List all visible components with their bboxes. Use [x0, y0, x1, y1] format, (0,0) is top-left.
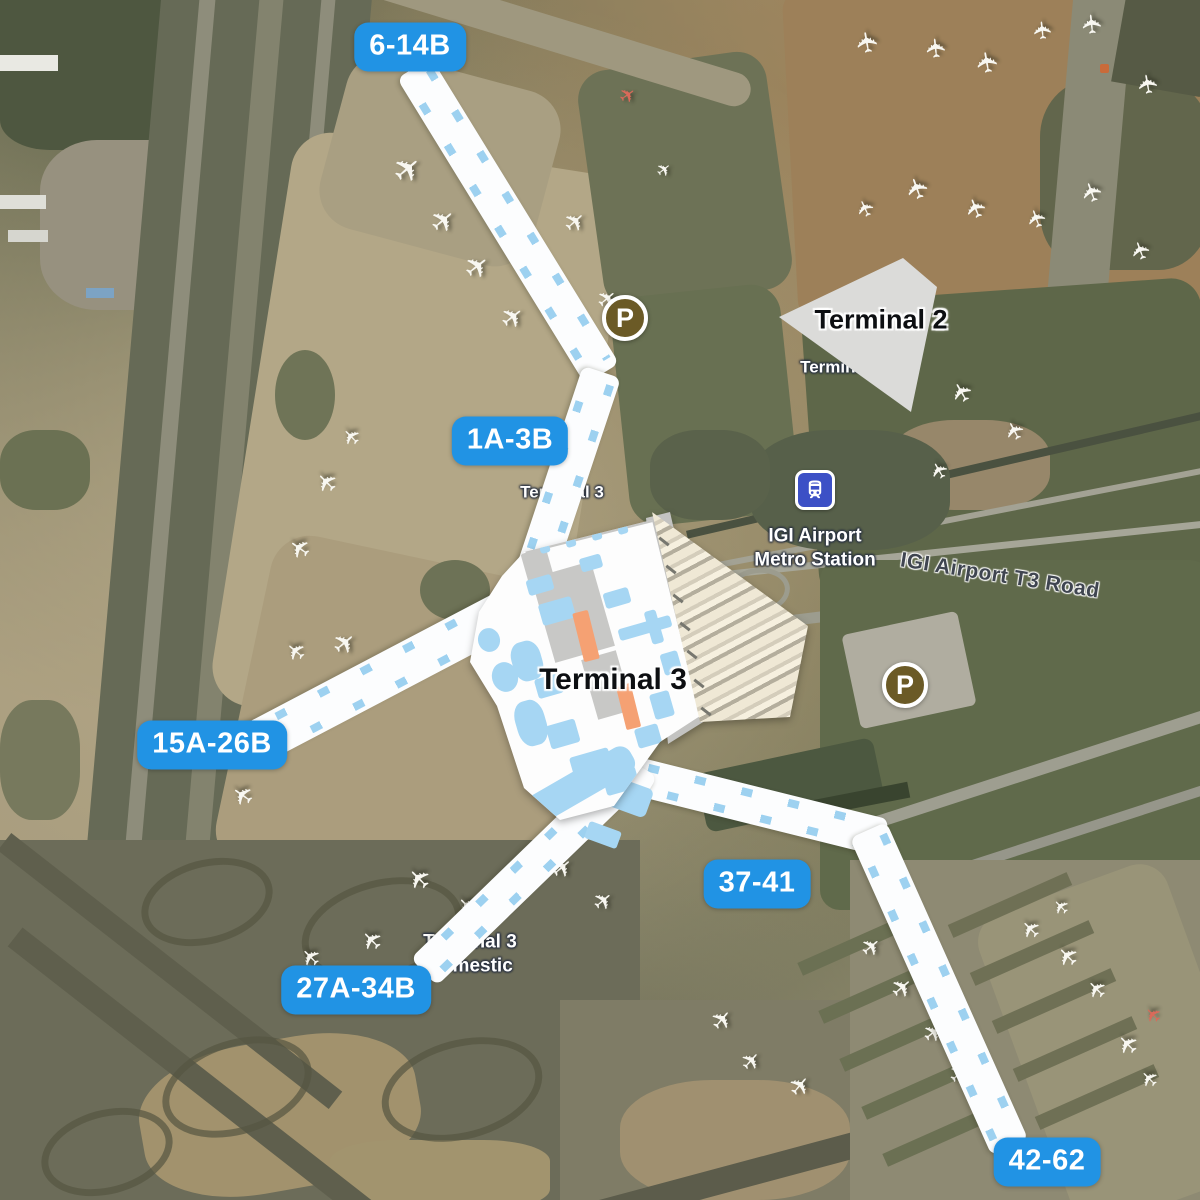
- gate-marker-27A-34B[interactable]: 27A-34B: [281, 966, 431, 1015]
- parking-icon[interactable]: P: [602, 295, 648, 341]
- metro-station-line1: IGI Airport: [754, 524, 875, 548]
- parking-glyph: P: [896, 672, 914, 699]
- parking-icon[interactable]: P: [882, 662, 928, 708]
- gate-marker-6-14B[interactable]: 6-14B: [354, 23, 466, 72]
- floorplan-patch: [522, 506, 654, 553]
- metro-station-line2: Metro Station: [754, 548, 875, 572]
- terminal2-label: Terminal 2: [814, 305, 947, 336]
- metro-station-icon[interactable]: [795, 470, 835, 510]
- floorplan-patch: [591, 531, 603, 541]
- floorplan-patch: [475, 625, 503, 654]
- terminal3-building: [0, 0, 1200, 1200]
- terminal3-label: Terminal 3: [539, 663, 687, 697]
- floorplan-patch: [565, 538, 577, 548]
- floorplan-patch: [578, 553, 603, 573]
- gate-marker-42-62[interactable]: 42-62: [994, 1138, 1101, 1187]
- gate-marker-1A-3B[interactable]: 1A-3B: [452, 417, 568, 466]
- floorplan-patch: [539, 544, 551, 554]
- gate-marker-37-41[interactable]: 37-41: [704, 860, 811, 909]
- floorplan-patch: [602, 587, 631, 610]
- terminal3-floorplan-details: [0, 0, 1200, 1200]
- floorplan-patch: [510, 697, 552, 749]
- metro-station-label: IGI Airport Metro Station: [754, 524, 875, 572]
- floorplan-patch: [545, 718, 580, 749]
- floorplan-patch: [617, 525, 629, 535]
- train-icon: [803, 478, 827, 502]
- gate-marker-15A-26B[interactable]: 15A-26B: [137, 721, 287, 770]
- parking-glyph: P: [616, 305, 634, 332]
- satellite-map[interactable]: ✈✈✈✈✈✈✈✈✈✈✈✈✈✈✈✈✈✈✈✈✈✈✈✈✈✈✈✈✈✈✈✈✈✈✈✈✈✈✈✈…: [0, 0, 1200, 1200]
